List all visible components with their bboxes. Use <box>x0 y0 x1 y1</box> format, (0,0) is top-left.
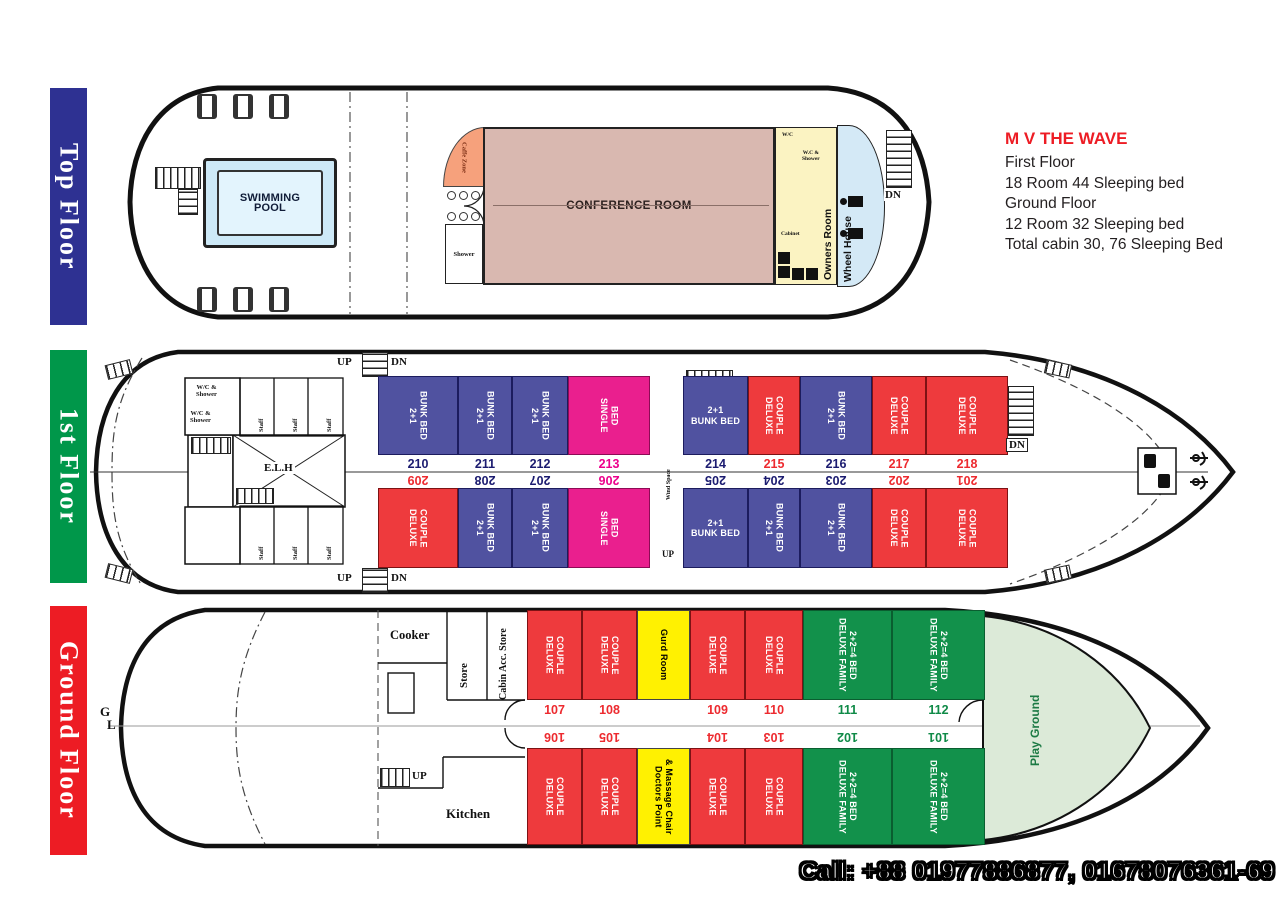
room-203-type: 2+1 BUNK BED <box>826 503 847 552</box>
deck-chair <box>197 94 217 119</box>
room-217: DELUXE COUPLE <box>872 376 926 455</box>
room-213-num: 213 <box>568 457 650 471</box>
room-209-num: 209 <box>378 473 458 487</box>
room-207: 2+1 BUNK BED <box>512 488 568 568</box>
console-icon <box>848 196 863 207</box>
caffe-zone-label: Caffe Zone <box>461 142 468 173</box>
shower-label: Shower <box>454 251 475 258</box>
room-207-num: 207 <box>512 473 568 487</box>
furniture-block <box>778 266 790 278</box>
wc-shower-label-1: W/C & Shower <box>196 384 217 398</box>
room-105: DELUXE COUPLE <box>582 748 637 845</box>
room-214-type: 2+1 BUNK BED <box>691 405 740 426</box>
doctors-point-label: Doctors Point & Massage Chair <box>653 759 674 835</box>
ground-up-label: UP <box>412 770 427 782</box>
lobby-stairs-1 <box>191 437 231 454</box>
conference-centerline <box>493 205 769 206</box>
store-label: Store <box>458 628 470 688</box>
room-111-type: DELUXE FAMILY 2+2=4 BED <box>837 618 858 692</box>
swimming-pool-label: SWIMMING POOL <box>240 193 300 214</box>
room-215-type: DELUXE COUPLE <box>764 396 785 435</box>
room-105-num: 105 <box>582 730 637 744</box>
room-207-type: 2+1 BUNK BED <box>530 503 551 552</box>
room-208-num: 208 <box>458 473 512 487</box>
banner-1st-floor: 1st Floor <box>50 350 87 583</box>
cabin-acc-store-label: Cabin Acc. Store <box>498 614 509 700</box>
staff-cabin-label: Staff <box>326 388 333 432</box>
room-107-type: DELUXE COUPLE <box>544 636 565 675</box>
winch-box <box>1138 448 1176 494</box>
stair-dn-label-bottom: DN <box>391 572 407 584</box>
mid-stairs-bottom <box>362 568 388 593</box>
gurd-room-label: Gurd Room <box>658 629 669 680</box>
room-214-num: 214 <box>683 457 748 471</box>
room-208: 2+1 BUNK BED <box>458 488 512 568</box>
cabinet-label: Cabinet <box>781 231 800 237</box>
windspace-up-label: UP <box>662 549 674 559</box>
room-104: DELUXE COUPLE <box>690 748 745 845</box>
console-icon <box>848 228 863 239</box>
deck-chair <box>269 287 289 312</box>
room-217-num: 217 <box>872 457 926 471</box>
room-211-type: 2+1 BUNK BED <box>475 391 496 440</box>
deck-chair <box>197 287 217 312</box>
room-211: 2+1 BUNK BED <box>458 376 512 455</box>
room-108-num: 108 <box>582 703 637 717</box>
room-112: DELUXE FAMILY 2+2=4 BED <box>892 610 985 700</box>
banner-top-floor: Top Floor <box>50 88 87 325</box>
room-112-num: 112 <box>892 703 985 717</box>
play-ground-label: Play Ground <box>1028 660 1050 800</box>
room-111-num: 111 <box>803 703 892 717</box>
room-214: 2+1 BUNK BED <box>683 376 748 455</box>
room-111: DELUXE FAMILY 2+2=4 BED <box>803 610 892 700</box>
staff-cabin-label: Staff <box>326 516 333 560</box>
doctors-point: Doctors Point & Massage Chair <box>637 748 690 845</box>
room-215: DELUXE COUPLE <box>748 376 800 455</box>
kitchen-label: Kitchen <box>446 806 490 822</box>
staff-cabin-label: Staff <box>258 516 265 560</box>
mid-stairs-top <box>362 352 388 377</box>
wc-shower-room-bottom <box>185 507 240 564</box>
room-102-type: DELUXE FAMILY 2+2=4 BED <box>837 760 858 834</box>
room-102: DELUXE FAMILY 2+2=4 BED <box>803 748 892 845</box>
room-110-num: 110 <box>745 703 803 717</box>
room-204-type: 2+1 BUNK BED <box>764 503 785 552</box>
room-106-type: DELUXE COUPLE <box>544 777 565 816</box>
room-216-type: 2+1 BUNK BED <box>826 391 847 440</box>
room-110: DELUXE COUPLE <box>745 610 803 700</box>
table-icon <box>459 212 468 221</box>
room-209: DELUXE COUPLE <box>378 488 458 568</box>
room-205-type: 2+1 BUNK BED <box>691 518 740 539</box>
room-203-num: 203 <box>800 473 872 487</box>
room-101-num: 101 <box>892 730 985 744</box>
room-216: 2+1 BUNK BED <box>800 376 872 455</box>
stair-up-label-top: UP <box>337 356 352 368</box>
playground-area <box>983 616 1150 840</box>
furniture-block <box>806 268 818 280</box>
room-201-num: 201 <box>926 473 1008 487</box>
stair-up-label-bottom: UP <box>337 572 352 584</box>
bow-dn-label: DN <box>1006 438 1028 452</box>
deck-chair <box>233 94 253 119</box>
wheel-house-label: Wheel House <box>842 148 854 282</box>
top-deck-dn-label: DN <box>884 189 902 201</box>
room-107: DELUXE COUPLE <box>527 610 582 700</box>
wind-space-label: Wind Space <box>666 448 672 500</box>
banner-1st-floor-label: 1st Floor <box>54 408 84 525</box>
room-218-num: 218 <box>926 457 1008 471</box>
info-line: Ground Floor <box>1005 194 1273 215</box>
top-deck-dn-stairs <box>886 130 912 188</box>
wc-shower-label-2: W/C & Shower <box>190 410 211 424</box>
info-line: First Floor <box>1005 153 1273 174</box>
room-108-type: DELUXE COUPLE <box>599 636 620 675</box>
info-line: Total cabin 30, 76 Sleeping Bed <box>1005 235 1273 256</box>
room-213-type: SINGLE BED <box>599 398 620 433</box>
info-line: 12 Room 32 Sleeping bed <box>1005 215 1273 236</box>
info-block: M V THE WAVE First Floor 18 Room 44 Slee… <box>1005 129 1273 256</box>
furniture-block <box>792 268 804 280</box>
wc-shower-label: W.C & Shower <box>802 150 820 162</box>
conference-room: CONFERENCE ROOM <box>483 127 775 285</box>
room-109-type: DELUXE COUPLE <box>707 636 728 675</box>
room-101-type: DELUXE FAMILY 2+2=4 BED <box>928 760 949 834</box>
deck-plan-canvas: Top Floor 1st Floor Ground Floor M V THE… <box>0 0 1280 904</box>
elh-label: E.L.H <box>262 462 295 474</box>
room-102-num: 102 <box>803 730 892 744</box>
banner-ground-floor: Ground Floor <box>50 606 87 855</box>
room-210: 2+1 BUNK BED <box>378 376 458 455</box>
banner-top-floor-label: Top Floor <box>54 143 84 271</box>
room-205-num: 205 <box>683 473 748 487</box>
room-202: DELUXE COUPLE <box>872 488 926 568</box>
room-218-type: DELUXE COUPLE <box>957 396 978 435</box>
room-112-type: DELUXE FAMILY 2+2=4 BED <box>928 618 949 692</box>
room-202-num: 202 <box>872 473 926 487</box>
room-206: SINGLE BED <box>568 488 650 568</box>
room-210-num: 210 <box>378 457 458 471</box>
room-109-num: 109 <box>690 703 745 717</box>
room-103-num: 103 <box>745 730 803 744</box>
room-209-type: DELUXE COUPLE <box>408 509 429 548</box>
stair-dn-label-top: DN <box>391 356 407 368</box>
staff-cabin-label: Staff <box>292 516 299 560</box>
owners-room-label: Owners Room <box>822 146 834 280</box>
room-104-type: DELUXE COUPLE <box>707 777 728 816</box>
room-205: 2+1 BUNK BED <box>683 488 748 568</box>
room-109: DELUXE COUPLE <box>690 610 745 700</box>
table-icon <box>459 191 468 200</box>
room-107-num: 107 <box>527 703 582 717</box>
room-110-type: DELUXE COUPLE <box>764 636 785 675</box>
ship-title: M V THE WAVE <box>1005 129 1273 149</box>
room-108: DELUXE COUPLE <box>582 610 637 700</box>
room-103: DELUXE COUPLE <box>745 748 803 845</box>
room-212: 2+1 BUNK BED <box>512 376 568 455</box>
room-201: DELUXE COUPLE <box>926 488 1008 568</box>
room-215-num: 215 <box>748 457 800 471</box>
helm-chair-icon <box>840 198 847 205</box>
room-106: DELUXE COUPLE <box>527 748 582 845</box>
table-icon <box>471 212 480 221</box>
deck-chair <box>233 287 253 312</box>
room-104-num: 104 <box>690 730 745 744</box>
banner-ground-floor-label: Ground Floor <box>54 641 84 820</box>
room-106-num: 106 <box>527 730 582 744</box>
room-211-num: 211 <box>458 457 512 471</box>
room-203: 2+1 BUNK BED <box>800 488 872 568</box>
bow-stairs <box>1008 386 1034 436</box>
shower-room: Shower <box>445 224 483 284</box>
room-216-num: 216 <box>800 457 872 471</box>
table-icon <box>447 191 456 200</box>
table-icon <box>447 212 456 221</box>
wc-label: W/C <box>782 132 793 138</box>
room-101: DELUXE FAMILY 2+2=4 BED <box>892 748 985 845</box>
info-line: 18 Room 44 Sleeping bed <box>1005 174 1273 195</box>
cooker-label: Cooker <box>390 628 430 643</box>
room-212-type: 2+1 BUNK BED <box>530 391 551 440</box>
room-210-type: 2+1 BUNK BED <box>408 391 429 440</box>
room-213: SINGLE BED <box>568 376 650 455</box>
staff-cabin-label: Staff <box>292 388 299 432</box>
room-206-type: SINGLE BED <box>599 511 620 546</box>
ground-up-stairs <box>380 768 410 787</box>
room-103-type: DELUXE COUPLE <box>764 777 785 816</box>
room-212-num: 212 <box>512 457 568 471</box>
helm-chair-icon <box>840 230 847 237</box>
room-204: 2+1 BUNK BED <box>748 488 800 568</box>
centerline-l: L <box>107 717 116 733</box>
room-202-type: DELUXE COUPLE <box>889 509 910 548</box>
lobby-stairs-2 <box>236 488 274 504</box>
pool-stairs-turn <box>178 189 198 215</box>
room-206-num: 206 <box>568 473 650 487</box>
room-217-type: DELUXE COUPLE <box>889 396 910 435</box>
gurd-room: Gurd Room <box>637 610 690 700</box>
room-218: DELUXE COUPLE <box>926 376 1008 455</box>
contact-phone: Call: +88 01977886877, 01678076361-69 <box>690 858 1275 886</box>
staff-cabin-label: Staff <box>258 388 265 432</box>
room-208-type: 2+1 BUNK BED <box>475 503 496 552</box>
deck-chair <box>269 94 289 119</box>
pool-stairs <box>155 167 201 189</box>
swimming-pool: SWIMMING POOL <box>203 158 337 248</box>
table-icon <box>471 191 480 200</box>
room-204-num: 204 <box>748 473 800 487</box>
conference-room-label: CONFERENCE ROOM <box>566 201 691 212</box>
room-105-type: DELUXE COUPLE <box>599 777 620 816</box>
room-201-type: DELUXE COUPLE <box>957 509 978 548</box>
furniture-block <box>778 252 790 264</box>
